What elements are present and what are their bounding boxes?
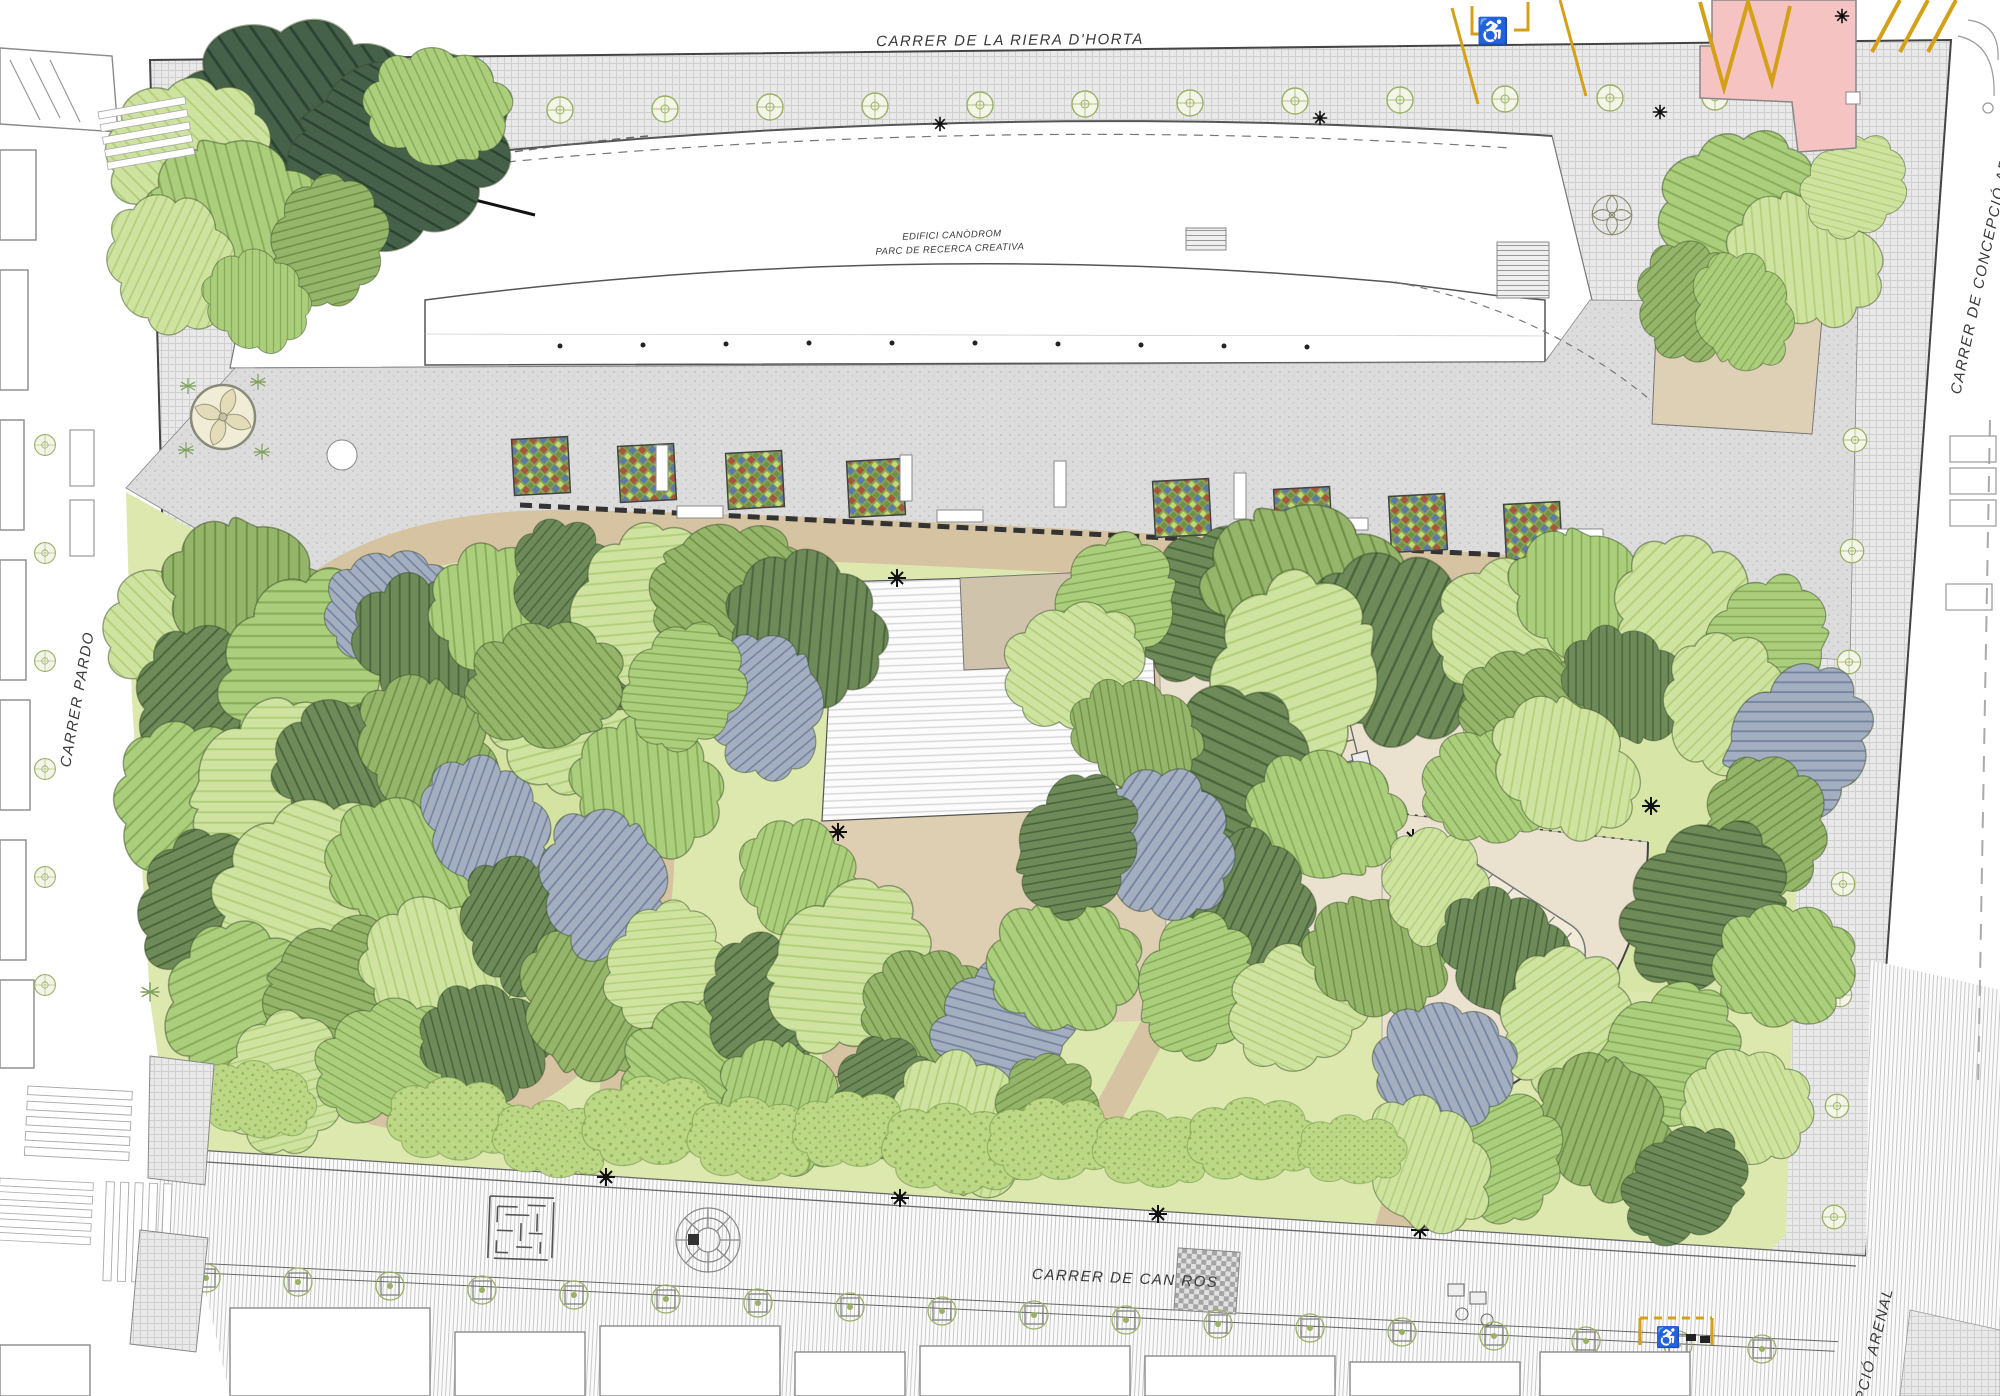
- bench: [1234, 473, 1246, 519]
- left-street-trees: [35, 435, 56, 996]
- bench: [656, 445, 668, 491]
- bench: [937, 510, 983, 522]
- bench: [677, 506, 723, 518]
- bench: [900, 455, 912, 501]
- site-plan-drawing: ♿ ♿ CARRER DE LA RIERA D'HORTA CARRER PA…: [0, 0, 2000, 1396]
- landscape-master-plan: ♿ ♿ CARRER DE LA RIERA D'HORTA CARRER PA…: [0, 0, 2000, 1396]
- bench: [1054, 461, 1066, 507]
- round-leaf-planter: [191, 385, 255, 449]
- street-label-left: CARRER PARDO: [57, 630, 98, 769]
- street-label-right: CARRER DE CONCEPCIÓ ARENAL: [1948, 112, 2000, 395]
- context-buildings-left: [0, 48, 118, 1068]
- round-feature: [327, 440, 357, 470]
- wheelchair-icon: ♿: [1477, 16, 1509, 46]
- street-label-top: CARRER DE LA RIERA D'HORTA: [876, 31, 1144, 50]
- wheelchair-icon: ♿: [1656, 1325, 1681, 1349]
